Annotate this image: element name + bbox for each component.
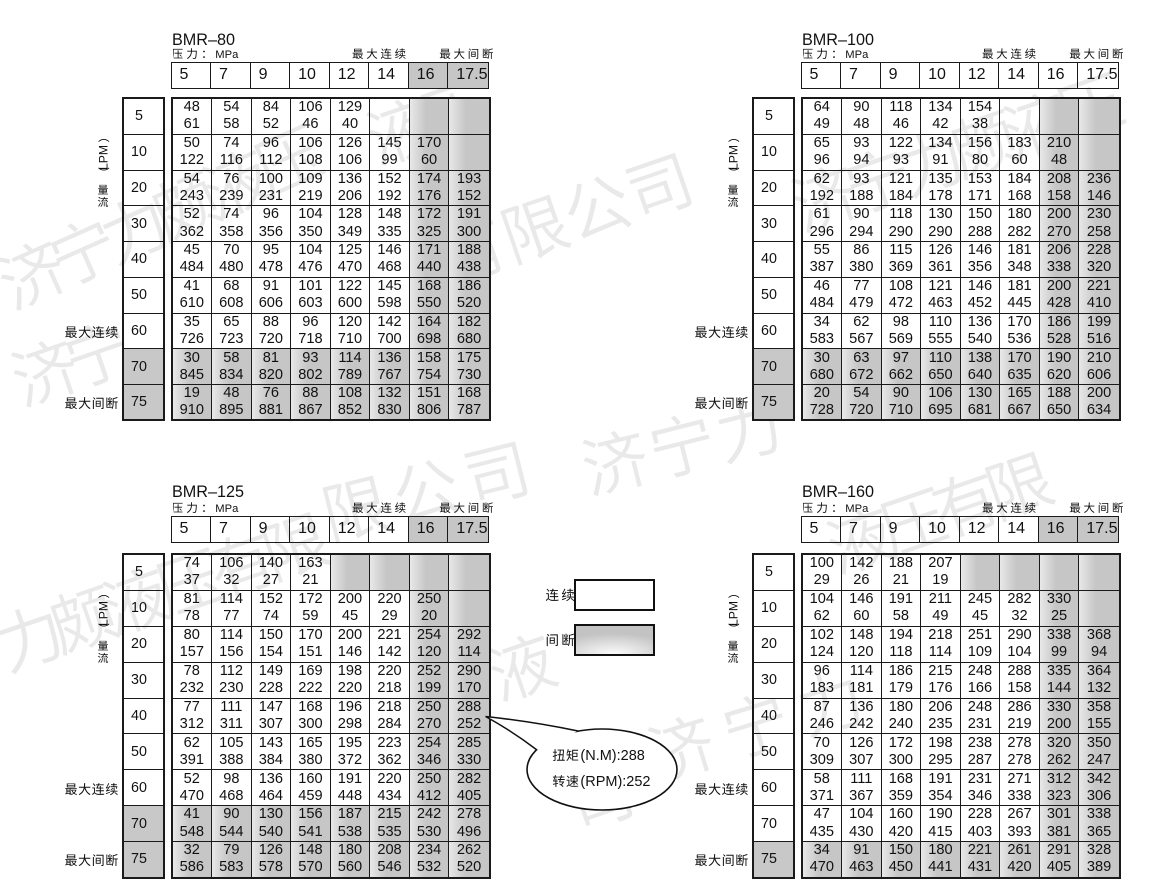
svg-text:MPa: MPa — [845, 503, 869, 515]
svg-text:(N.M):288: (N.M):288 — [580, 748, 644, 764]
svg-text:LPM: LPM — [96, 601, 110, 626]
svg-text:LPM: LPM — [726, 145, 740, 170]
svg-text:MPa: MPa — [215, 49, 239, 61]
svg-text:(RPM):252: (RPM):252 — [580, 774, 650, 790]
svg-text:MPa: MPa — [845, 49, 869, 61]
svg-text:MPa: MPa — [215, 503, 239, 515]
svg-text:LPM: LPM — [96, 145, 110, 170]
svg-text:LPM: LPM — [726, 601, 740, 626]
